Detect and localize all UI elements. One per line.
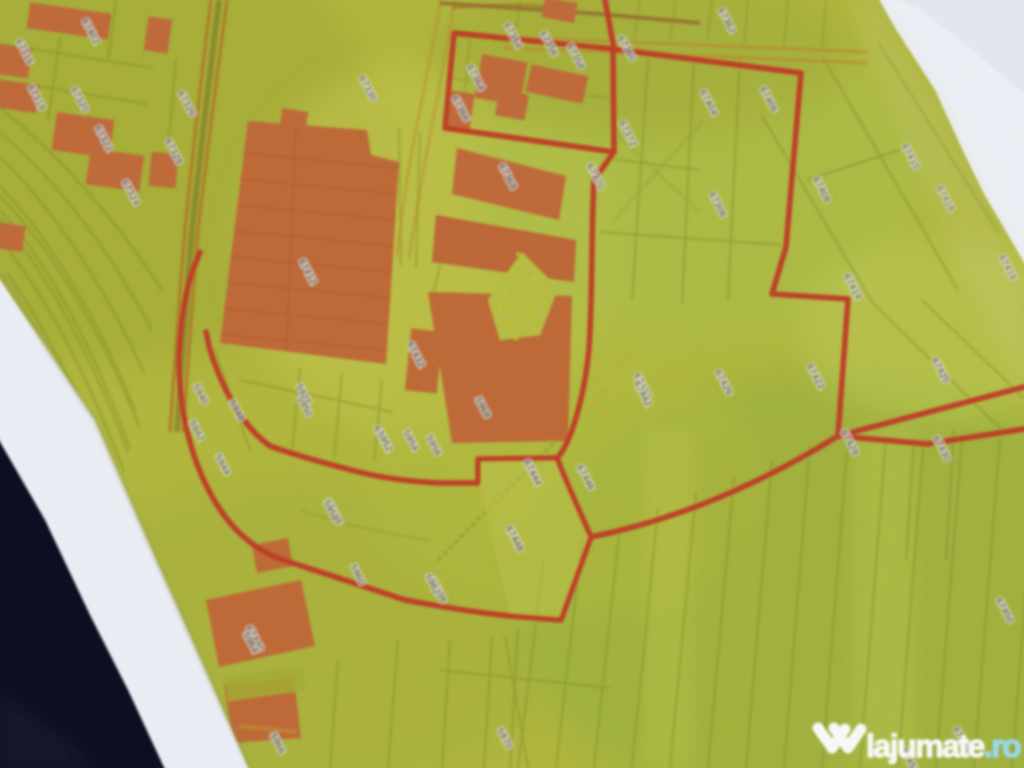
svg-text:lajumate.ro: lajumate.ro xyxy=(866,728,1021,764)
